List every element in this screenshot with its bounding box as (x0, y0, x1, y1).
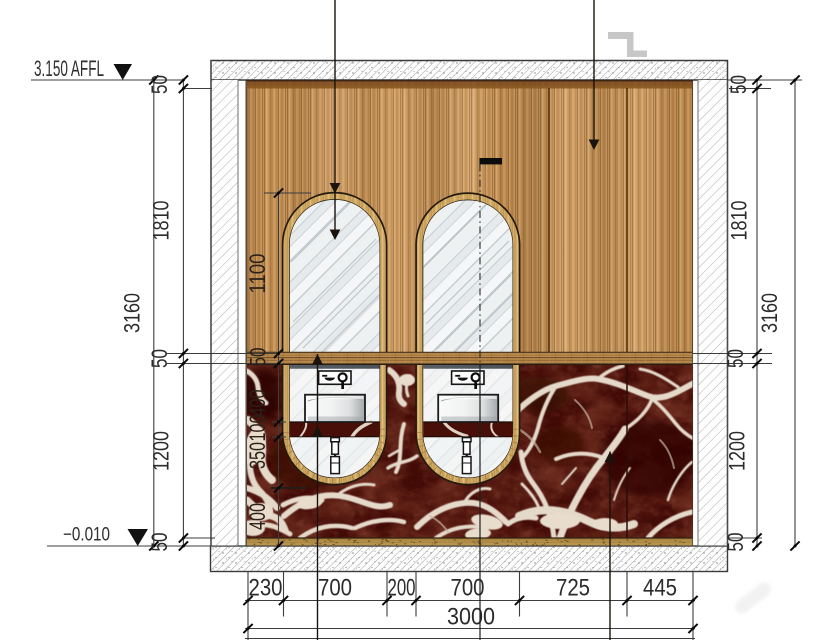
svg-text:400: 400 (245, 503, 270, 530)
svg-text:400: 400 (245, 390, 270, 417)
svg-text:1100: 1100 (245, 254, 270, 294)
svg-text:700: 700 (318, 575, 352, 602)
svg-text:230: 230 (249, 575, 283, 602)
svg-text:3.150 AFFL: 3.150 AFFL (34, 56, 104, 81)
svg-text:50: 50 (723, 533, 748, 552)
svg-text:725: 725 (556, 575, 590, 602)
svg-text:50: 50 (246, 348, 271, 367)
svg-text:50: 50 (147, 75, 172, 94)
svg-text:50: 50 (147, 533, 172, 552)
svg-text:50: 50 (726, 75, 751, 94)
svg-text:1810: 1810 (149, 201, 174, 241)
svg-text:3160: 3160 (757, 293, 782, 333)
svg-text:50: 50 (147, 349, 172, 368)
svg-text:200: 200 (388, 575, 416, 602)
svg-text:1810: 1810 (727, 201, 752, 241)
svg-text:−0.010: −0.010 (63, 525, 110, 546)
svg-text:1200: 1200 (149, 431, 174, 471)
svg-text:445: 445 (643, 575, 677, 602)
svg-text:3160: 3160 (120, 293, 145, 333)
svg-text:350: 350 (245, 442, 270, 469)
svg-text:1200: 1200 (725, 431, 750, 471)
svg-text:50: 50 (723, 349, 748, 368)
svg-text:3000: 3000 (447, 604, 495, 631)
svg-text:100: 100 (245, 415, 270, 442)
